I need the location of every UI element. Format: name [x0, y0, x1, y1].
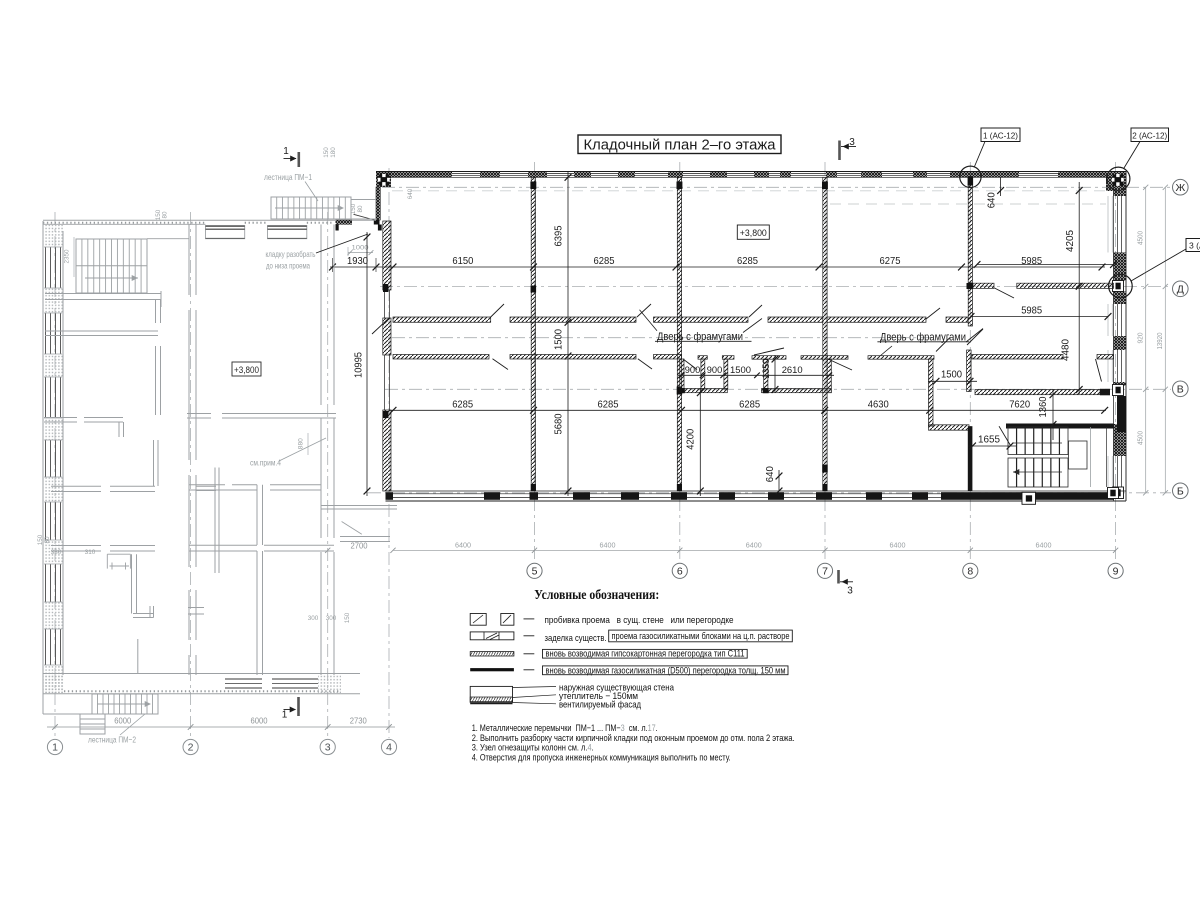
svg-text:1: 1: [282, 710, 288, 721]
svg-text:6400: 6400: [746, 540, 762, 549]
svg-text:300: 300: [308, 615, 319, 622]
svg-text:1500: 1500: [941, 370, 962, 381]
svg-text:2 (АС-12): 2 (АС-12): [1132, 130, 1167, 140]
svg-text:6275: 6275: [880, 256, 901, 267]
svg-text:5985: 5985: [1021, 256, 1042, 267]
svg-text:10995: 10995: [353, 352, 364, 378]
svg-text:4200: 4200: [686, 428, 697, 449]
svg-text:1 (АС-12): 1 (АС-12): [983, 130, 1018, 140]
svg-text:1655: 1655: [978, 434, 1000, 445]
svg-text:6400: 6400: [600, 540, 616, 549]
svg-text:Кладочный план 2–го этажа: Кладочный план 2–го этажа: [584, 136, 777, 153]
svg-text:7: 7: [822, 566, 828, 578]
svg-text:вентилируемый фасад: вентилируемый фасад: [559, 699, 641, 710]
svg-text:5: 5: [532, 566, 538, 578]
svg-text:проема газосиликатными блоками: проема газосиликатными блоками на ц.п. р…: [612, 630, 790, 641]
svg-text:пробивка проема в сущ. стене: пробивка проема в сущ. стене или перегор…: [545, 614, 734, 625]
svg-text:920: 920: [1136, 333, 1145, 344]
svg-text:1930: 1930: [347, 256, 368, 267]
svg-text:900: 900: [707, 365, 723, 376]
svg-text:2610: 2610: [782, 365, 803, 376]
svg-text:1500: 1500: [730, 365, 751, 376]
svg-text:+3,800: +3,800: [740, 228, 767, 239]
svg-text:1360: 1360: [1038, 396, 1049, 417]
svg-text:1500: 1500: [554, 329, 565, 350]
svg-text:150: 150: [350, 203, 357, 214]
svg-text:4480: 4480: [1061, 339, 1072, 361]
svg-text:5680: 5680: [554, 413, 565, 434]
svg-text:6285: 6285: [598, 400, 619, 411]
svg-text:330: 330: [51, 549, 62, 556]
svg-text:лестница ПМ−1: лестница ПМ−1: [264, 172, 312, 182]
svg-text:4. Отверстия для пропуска инже: 4. Отверстия для пропуска инженерных ком…: [472, 751, 731, 762]
svg-text:1000: 1000: [352, 245, 369, 252]
svg-text:80: 80: [162, 211, 169, 219]
svg-text:80: 80: [357, 205, 364, 213]
svg-text:150: 150: [37, 534, 44, 545]
svg-text:3: 3: [849, 137, 855, 148]
svg-text:150: 150: [323, 147, 330, 158]
svg-text:см.прим.4: см.прим.4: [250, 458, 281, 468]
svg-text:6400: 6400: [1036, 540, 1052, 549]
svg-text:4500: 4500: [1136, 231, 1145, 245]
svg-text:заделка существ.: заделка существ.: [545, 632, 607, 643]
svg-text:6285: 6285: [737, 256, 758, 267]
svg-text:6000: 6000: [251, 717, 269, 726]
svg-text:Условные обозначения:: Условные обозначения:: [534, 587, 659, 602]
svg-text:9: 9: [1113, 566, 1119, 578]
svg-text:6395: 6395: [554, 225, 565, 246]
svg-text:8: 8: [967, 566, 973, 578]
svg-text:3 (АС−12: 3 (АС−12: [1189, 240, 1200, 250]
svg-text:6400: 6400: [455, 540, 471, 549]
svg-text:310: 310: [85, 549, 96, 556]
svg-text:880: 880: [298, 438, 305, 449]
svg-text:640: 640: [987, 192, 998, 208]
svg-text:300: 300: [326, 615, 337, 622]
svg-text:1: 1: [283, 146, 289, 157]
svg-text:4630: 4630: [868, 400, 889, 411]
svg-text:2730: 2730: [350, 717, 368, 726]
svg-text:3: 3: [325, 742, 331, 754]
svg-text:6285: 6285: [739, 400, 760, 411]
svg-text:80: 80: [44, 536, 51, 544]
svg-text:180: 180: [330, 147, 337, 158]
svg-text:5985: 5985: [1021, 306, 1042, 317]
svg-text:лестница ПМ−2: лестница ПМ−2: [88, 734, 136, 744]
svg-text:Ж: Ж: [1175, 182, 1185, 194]
svg-text:Д: Д: [1177, 284, 1184, 296]
svg-text:6150: 6150: [452, 256, 473, 267]
svg-text:7620: 7620: [1009, 400, 1030, 411]
svg-text:640: 640: [765, 466, 776, 482]
svg-text:3: 3: [847, 586, 853, 597]
svg-text:вновь возводимая гипсокартонна: вновь возводимая гипсокартонная перегоро…: [546, 648, 745, 659]
svg-text:4205: 4205: [1065, 230, 1076, 252]
svg-text:кладку разобрать: кладку разобрать: [266, 249, 316, 259]
svg-text:1350: 1350: [761, 359, 772, 379]
svg-text:до низа проема: до низа проема: [266, 261, 310, 271]
svg-text:6285: 6285: [452, 400, 473, 411]
svg-text:4500: 4500: [1136, 431, 1145, 445]
svg-text:Б: Б: [1177, 486, 1184, 498]
svg-text:6400: 6400: [890, 540, 906, 549]
svg-text:2350: 2350: [64, 249, 71, 263]
svg-text:640: 640: [407, 188, 414, 199]
svg-text:1: 1: [52, 742, 58, 754]
svg-text:6: 6: [677, 566, 683, 578]
svg-text:В: В: [1177, 384, 1184, 396]
svg-text:150: 150: [344, 612, 351, 623]
svg-text:вновь возводимая газосиликатна: вновь возводимая газосиликатная (D500) п…: [546, 664, 786, 675]
svg-text:+3,800: +3,800: [234, 365, 259, 375]
svg-text:13920: 13920: [1155, 333, 1164, 350]
svg-text:900: 900: [685, 365, 701, 376]
svg-text:6285: 6285: [594, 256, 615, 267]
svg-text:6000: 6000: [114, 717, 132, 726]
svg-text:4: 4: [386, 742, 392, 754]
svg-text:2700: 2700: [351, 541, 369, 550]
svg-text:2: 2: [188, 742, 194, 754]
